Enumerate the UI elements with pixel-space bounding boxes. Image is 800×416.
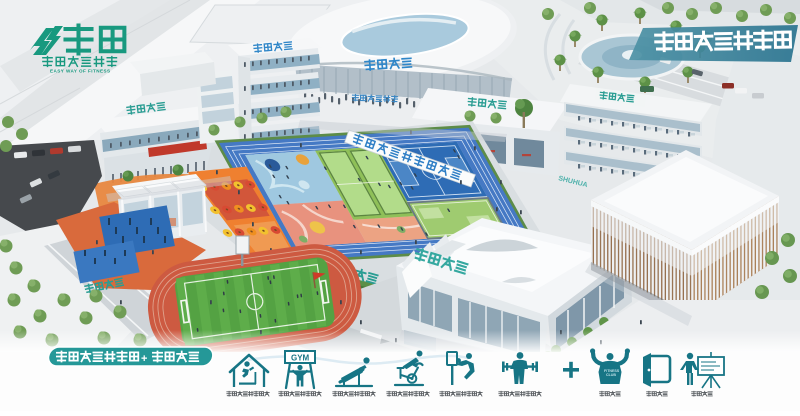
svg-text:CLUB: CLUB [606,373,616,377]
svg-text:+: + [141,353,147,365]
svg-text:GYM: GYM [291,354,310,363]
svg-text:EASY WAY OF FITNESS: EASY WAY OF FITNESS [50,69,111,74]
